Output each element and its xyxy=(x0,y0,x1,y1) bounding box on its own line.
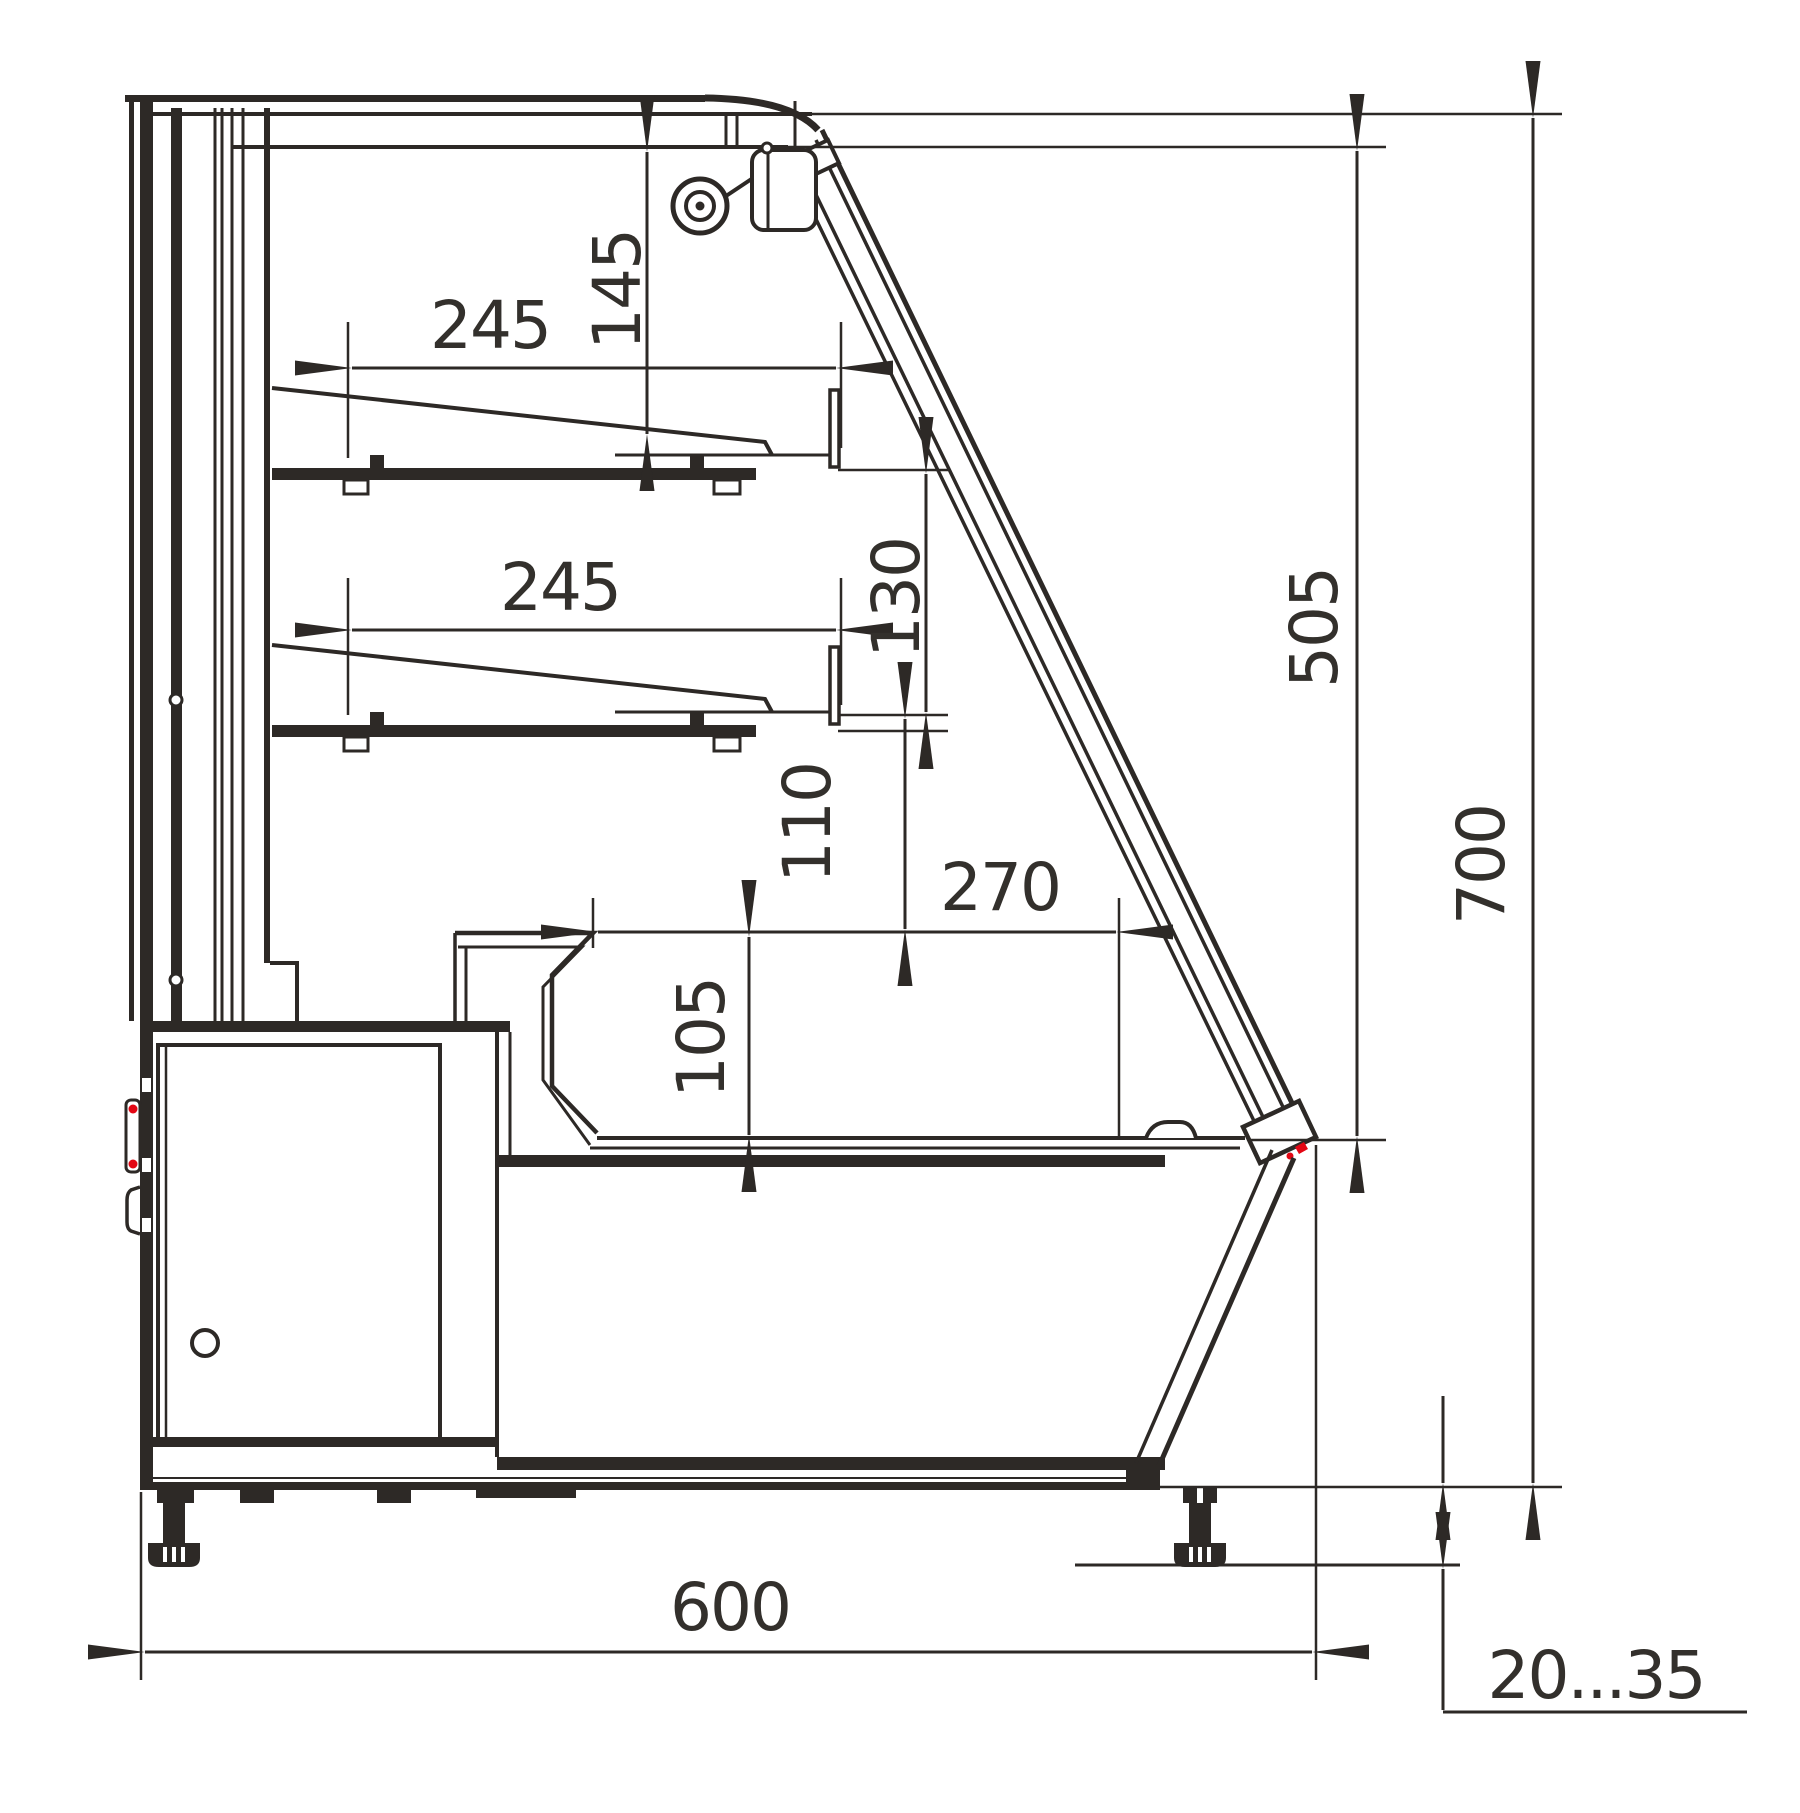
label-shelf-lower-depth: 245 xyxy=(500,549,620,626)
top-canopy xyxy=(125,95,818,147)
label-shelf-top-clearance: 145 xyxy=(579,230,656,350)
compartment-door xyxy=(158,1045,440,1445)
shelf-bolt-icon xyxy=(690,455,704,468)
front-bumper xyxy=(1126,1150,1294,1487)
shelf-lower xyxy=(272,645,839,751)
panel-screw-icon xyxy=(170,974,182,986)
switch-red-dot-icon xyxy=(129,1160,138,1169)
label-leg-adjustment-range: 20...35 xyxy=(1488,1637,1705,1714)
glass-bottom-frame xyxy=(1243,1101,1316,1163)
label-deck-depth: 270 xyxy=(940,849,1060,926)
front-glass xyxy=(673,130,1316,1163)
shelf-bolt-icon xyxy=(370,455,384,468)
label-shelf-top-depth: 245 xyxy=(430,287,550,364)
panel-screw-icon xyxy=(170,694,182,706)
shelf-upper xyxy=(272,388,839,494)
label-shelf-lower-clearance: 130 xyxy=(858,538,935,658)
hinge-bracket xyxy=(752,150,816,230)
label-front-glass-height: 505 xyxy=(1276,568,1353,688)
label-well-depth: 105 xyxy=(663,978,740,1098)
display-well xyxy=(455,933,1245,1457)
door-handle-hole-icon xyxy=(192,1330,218,1356)
label-overall-height: 700 xyxy=(1443,805,1520,925)
machinery-compartment xyxy=(126,1021,510,1447)
adjustable-foot-right xyxy=(1174,1488,1226,1567)
dimension-labels: 245 145 245 130 110 270 105 505 700 600 … xyxy=(430,230,1704,1714)
air-grille-hump xyxy=(1146,1122,1196,1138)
switch-red-dot-icon xyxy=(129,1105,138,1114)
label-overall-depth: 600 xyxy=(670,1569,790,1646)
lamp-icon xyxy=(673,178,753,233)
door-hinge-handle xyxy=(127,1187,140,1234)
display-case-cross-section: 245 145 245 130 110 270 105 505 700 600 … xyxy=(0,0,1800,1813)
drawing-sheet: 245 145 245 130 110 270 105 505 700 600 … xyxy=(0,0,1800,1813)
base-plinth xyxy=(140,1457,1165,1503)
shelf-bolt-icon xyxy=(690,712,704,725)
bracket-screw-icon xyxy=(762,143,772,153)
label-deck-clearance: 110 xyxy=(769,763,846,883)
shelf-bolt-icon xyxy=(370,712,384,725)
